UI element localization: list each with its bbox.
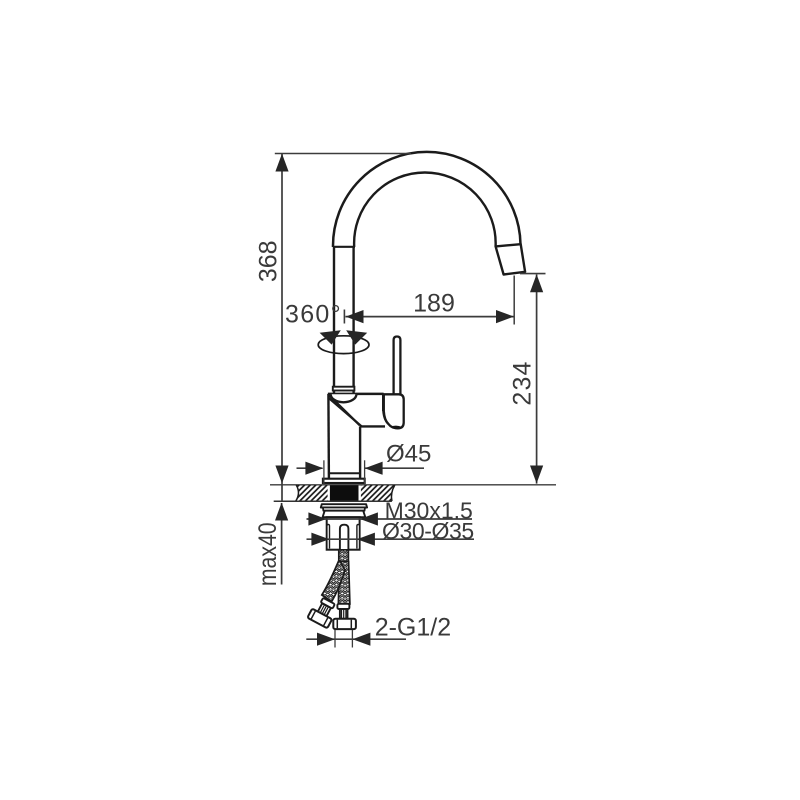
svg-text:max40: max40 — [254, 522, 282, 586]
svg-text:Ø30-Ø35: Ø30-Ø35 — [382, 518, 474, 544]
svg-text:360°: 360° — [285, 301, 342, 329]
svg-text:234: 234 — [509, 360, 537, 405]
svg-text:189: 189 — [413, 289, 455, 317]
svg-text:2-G1/2: 2-G1/2 — [375, 614, 451, 642]
svg-text:368: 368 — [254, 240, 282, 282]
svg-text:Ø45: Ø45 — [386, 441, 431, 468]
